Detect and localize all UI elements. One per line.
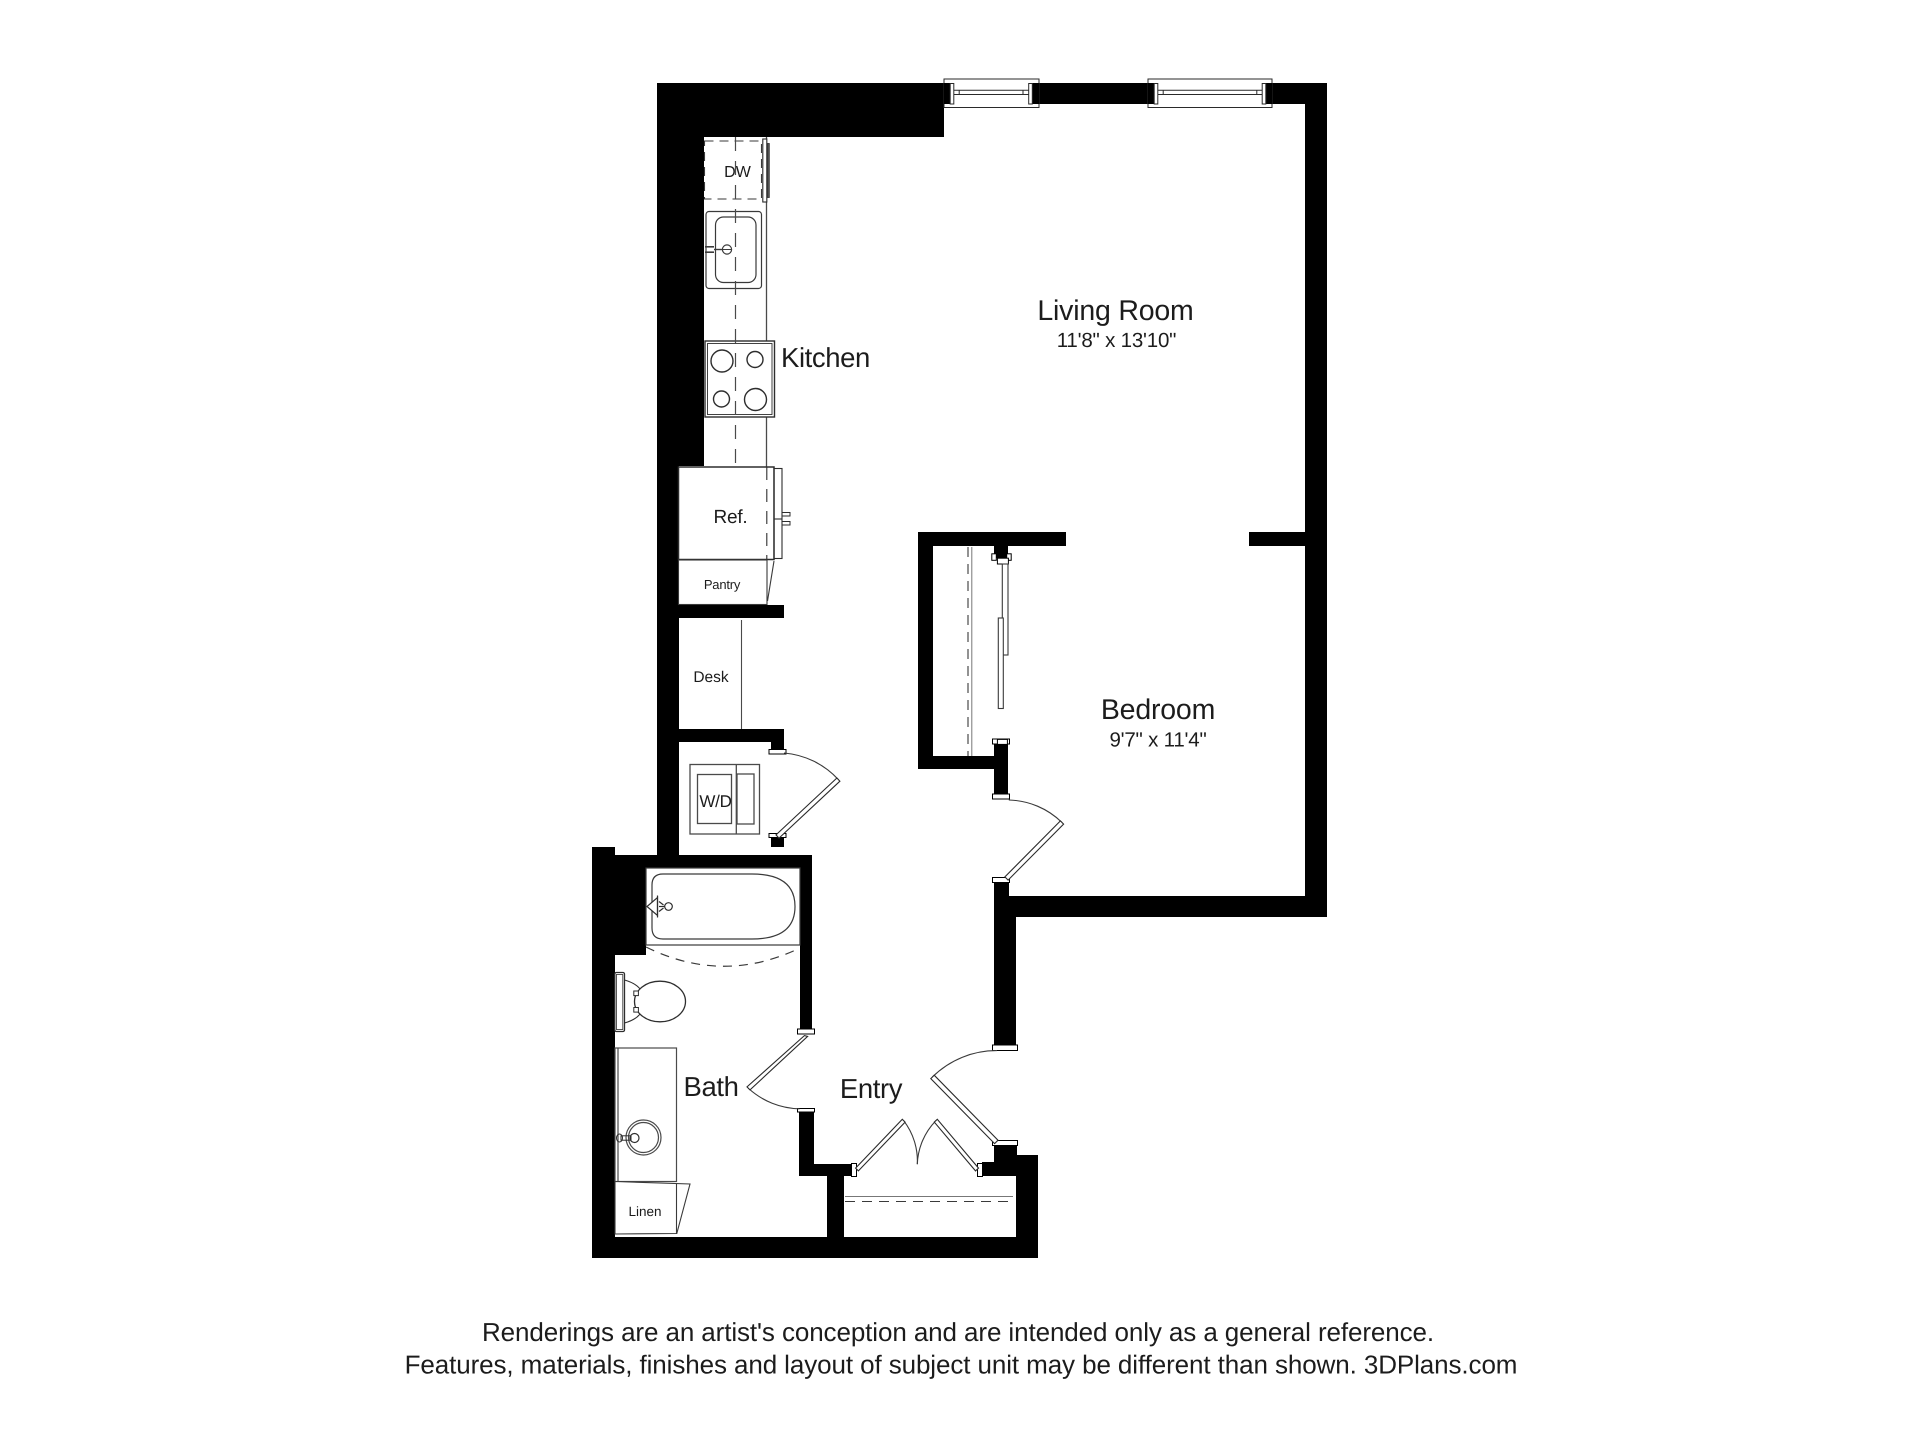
svg-text:W/D: W/D: [699, 792, 731, 811]
svg-text:Renderings are an artist's con: Renderings are an artist's conception an…: [482, 1317, 1434, 1347]
svg-text:Bath: Bath: [684, 1071, 739, 1102]
svg-text:Ref.: Ref.: [713, 507, 747, 528]
svg-text:Desk: Desk: [693, 669, 729, 686]
svg-text:Living Room: Living Room: [1037, 295, 1193, 327]
svg-text:Entry: Entry: [840, 1073, 903, 1104]
svg-text:Pantry: Pantry: [704, 577, 741, 592]
svg-text:Kitchen: Kitchen: [781, 342, 870, 373]
svg-text:Bedroom: Bedroom: [1101, 694, 1215, 726]
svg-text:Linen: Linen: [628, 1204, 661, 1219]
svg-text:Features, materials, finishes: Features, materials, finishes and layout…: [405, 1350, 1518, 1380]
svg-text:9'7" x 11'4": 9'7" x 11'4": [1109, 729, 1206, 752]
svg-text:DW: DW: [724, 164, 752, 181]
svg-text:11'8" x 13'10": 11'8" x 13'10": [1057, 329, 1177, 352]
